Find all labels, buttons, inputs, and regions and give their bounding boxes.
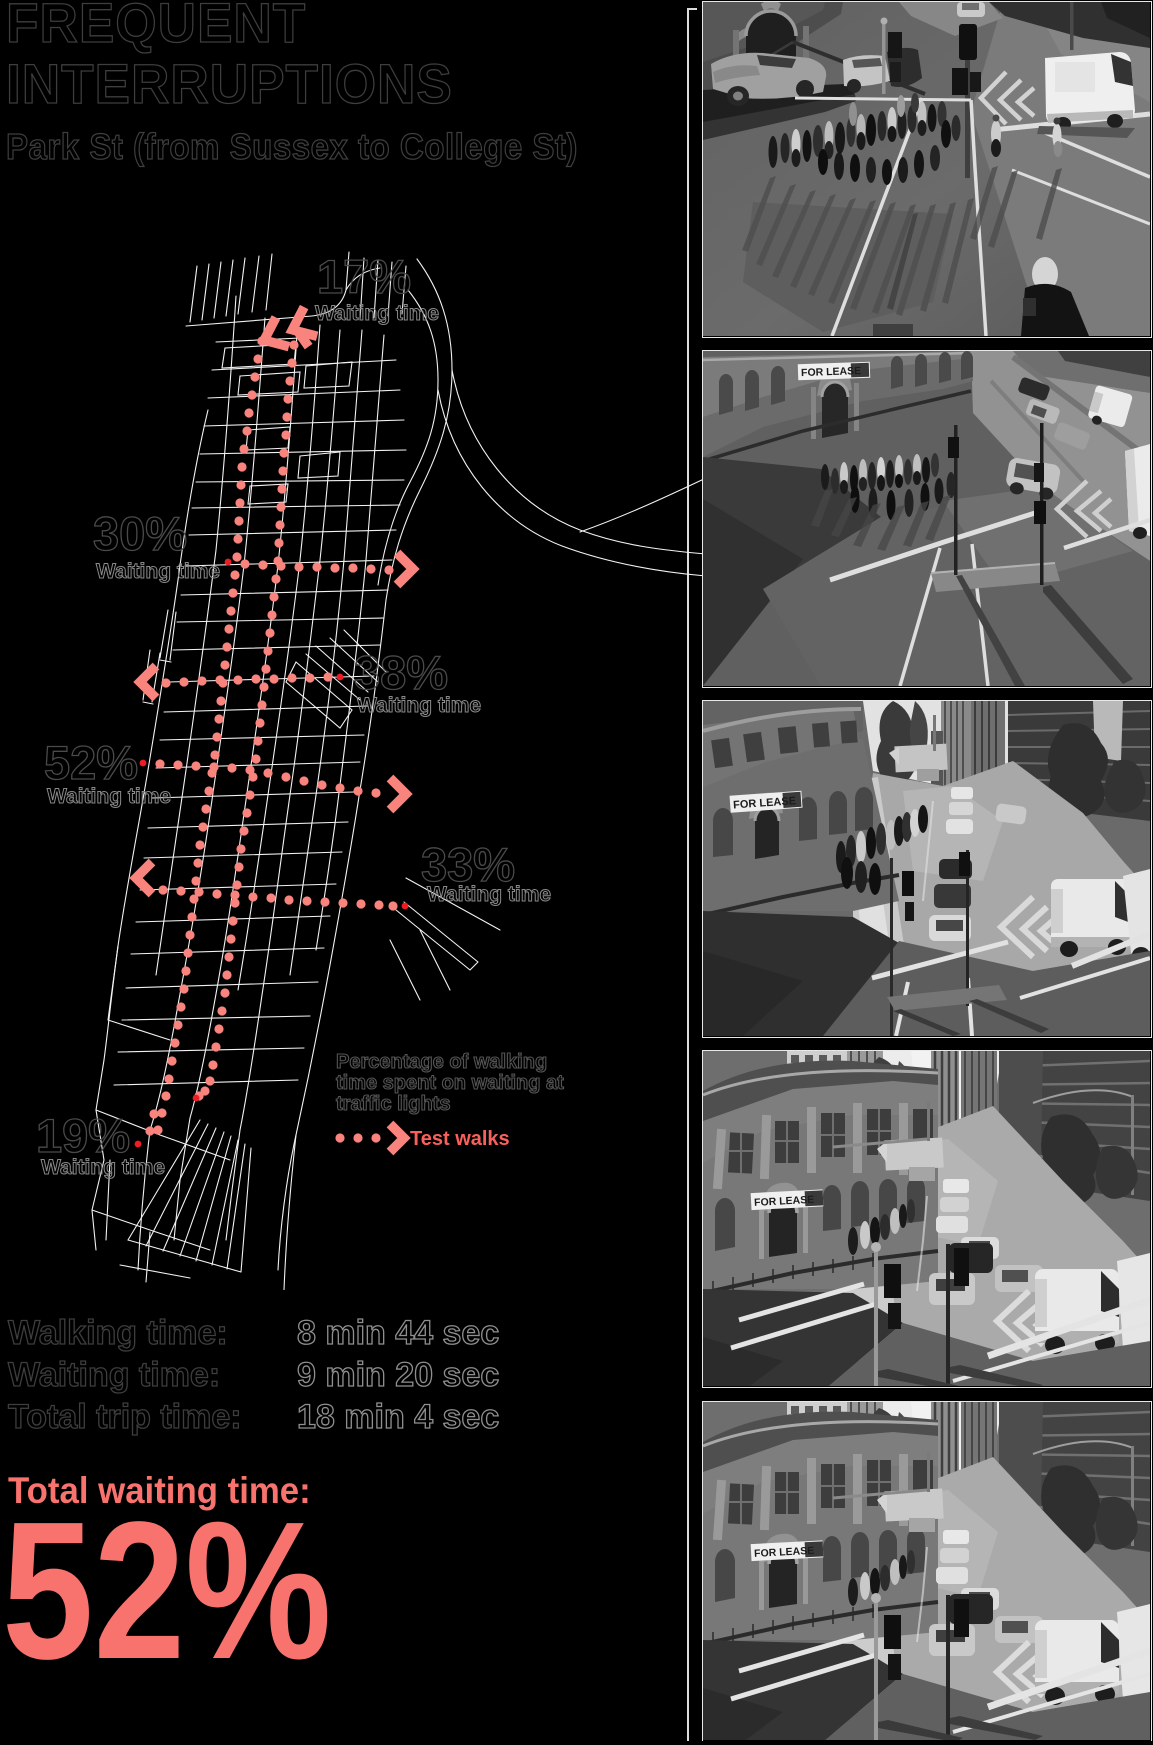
svg-text:Waiting time: Waiting time bbox=[357, 694, 481, 717]
svg-text:time spent on waiting at: time spent on waiting at bbox=[336, 1072, 564, 1094]
svg-text:17%: 17% bbox=[317, 250, 411, 303]
svg-text:Waiting time: Waiting time bbox=[315, 302, 439, 325]
svg-text:Waiting time: Waiting time bbox=[47, 785, 171, 808]
svg-text:19%: 19% bbox=[36, 1109, 130, 1162]
svg-text:traffic lights: traffic lights bbox=[336, 1093, 450, 1115]
svg-text:Percentage of walking: Percentage of walking bbox=[336, 1051, 547, 1073]
svg-text:52%: 52% bbox=[44, 736, 138, 789]
svg-text:FOR LEASE: FOR LEASE bbox=[801, 365, 861, 379]
svg-text:Test walks: Test walks bbox=[410, 1128, 510, 1150]
svg-text:Waiting time: Waiting time bbox=[41, 1156, 165, 1179]
svg-text:30%: 30% bbox=[93, 507, 187, 560]
svg-text:38%: 38% bbox=[354, 646, 448, 699]
svg-text:Waiting time: Waiting time bbox=[96, 560, 220, 583]
svg-text:Waiting time: Waiting time bbox=[427, 883, 551, 906]
